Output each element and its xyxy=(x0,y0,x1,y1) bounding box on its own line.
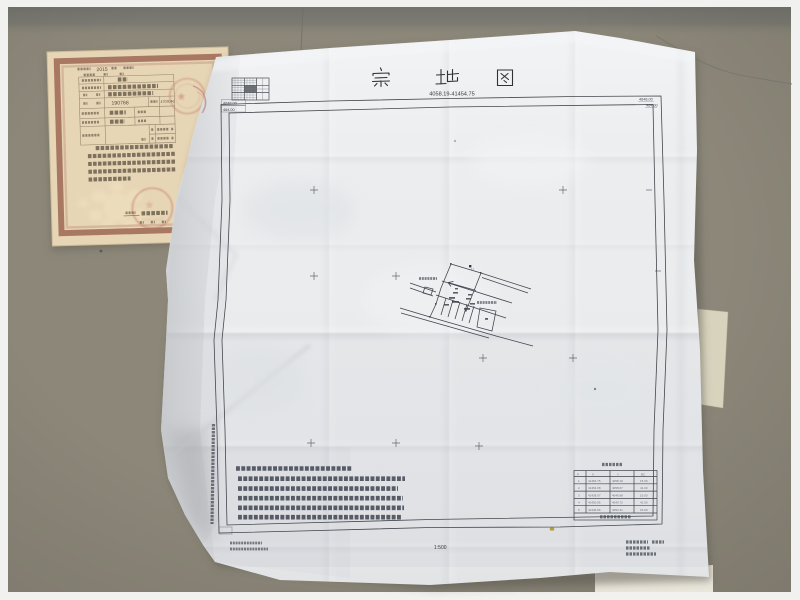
svg-text:41.00: 41.00 xyxy=(640,486,648,490)
svg-text:41446.96: 41446.96 xyxy=(588,508,601,512)
svg-text:41428.07: 41428.07 xyxy=(588,493,601,497)
svg-text:4648.00: 4648.00 xyxy=(223,101,237,105)
svg-text:41420.95: 41420.95 xyxy=(588,501,601,505)
svg-text:Y: Y xyxy=(617,472,619,476)
svg-text:4046.98: 4046.98 xyxy=(612,493,623,497)
svg-text:15.00: 15.00 xyxy=(640,479,648,483)
svg-text:4058.19-41454.75: 4058.19-41454.75 xyxy=(429,92,474,98)
svg-text:P: P xyxy=(577,472,579,476)
svg-text:190768: 190768 xyxy=(111,100,129,106)
svg-text:15.00: 15.00 xyxy=(640,508,648,512)
svg-text:15.00: 15.00 xyxy=(640,493,648,497)
svg-text:464.00: 464.00 xyxy=(646,104,658,108)
svg-text:4058.67: 4058.67 xyxy=(612,486,623,490)
svg-text:4052.41: 4052.41 xyxy=(612,508,623,512)
svg-text:4703046: 4703046 xyxy=(160,99,174,103)
svg-text:41454.08: 41454.08 xyxy=(588,486,601,490)
svg-text:4040.72: 4040.72 xyxy=(612,501,623,505)
svg-text:4058.19: 4058.19 xyxy=(612,479,623,483)
svg-text:464.00: 464.00 xyxy=(223,108,235,112)
svg-text:X: X xyxy=(592,472,594,476)
svg-text:4648.00: 4648.00 xyxy=(639,98,653,102)
svg-text:41454.75: 41454.75 xyxy=(588,479,601,483)
svg-text:41.00: 41.00 xyxy=(640,501,648,505)
svg-text:1:500: 1:500 xyxy=(434,545,447,551)
svg-text:2015: 2015 xyxy=(96,67,108,73)
